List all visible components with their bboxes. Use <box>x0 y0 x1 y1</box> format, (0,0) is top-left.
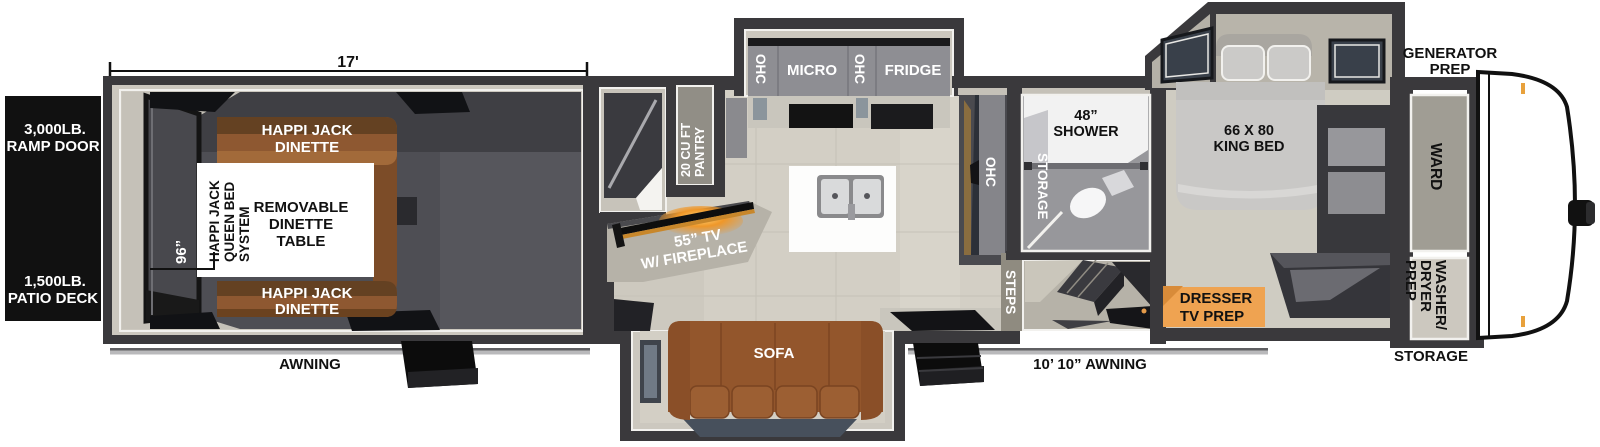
svg-text:TABLE: TABLE <box>277 233 326 250</box>
svg-text:66 X 80: 66 X 80 <box>1224 123 1274 139</box>
svg-text:WASHER/: WASHER/ <box>1432 260 1449 331</box>
svg-text:OHC: OHC <box>753 54 768 84</box>
svg-text:1,500LB.: 1,500LB. <box>24 273 86 290</box>
svg-text:STORAGE: STORAGE <box>1394 348 1468 365</box>
svg-text:REMOVABLE: REMOVABLE <box>254 199 349 216</box>
svg-text:48”: 48” <box>1074 108 1097 124</box>
svg-text:STORAGE: STORAGE <box>1035 153 1050 220</box>
svg-text:FRIDGE: FRIDGE <box>885 62 942 79</box>
svg-text:PREP: PREP <box>1430 61 1471 78</box>
svg-text:TV PREP: TV PREP <box>1180 308 1244 325</box>
svg-text:MICRO: MICRO <box>787 62 837 79</box>
svg-text:10’ 10” AWNING: 10’ 10” AWNING <box>1033 356 1147 373</box>
svg-text:PATIO DECK: PATIO DECK <box>8 290 98 307</box>
svg-text:HAPPI JACK: HAPPI JACK <box>262 285 353 302</box>
svg-text:WARD: WARD <box>1427 143 1444 190</box>
svg-text:PANTRY: PANTRY <box>693 126 707 177</box>
svg-text:DINETTE: DINETTE <box>275 301 339 318</box>
svg-text:HAPPI JACK: HAPPI JACK <box>262 122 353 139</box>
svg-text:RAMP DOOR: RAMP DOOR <box>6 138 99 155</box>
svg-text:3,000LB.: 3,000LB. <box>24 121 86 138</box>
svg-text:GENERATOR: GENERATOR <box>1403 45 1498 62</box>
svg-text:KING BED: KING BED <box>1214 139 1285 155</box>
svg-text:20 CU FT: 20 CU FT <box>679 122 693 177</box>
svg-text:AWNING: AWNING <box>279 356 341 373</box>
svg-text:DRYER: DRYER <box>1417 260 1434 312</box>
svg-text:17': 17' <box>337 54 359 71</box>
svg-text:PREP: PREP <box>1402 260 1419 301</box>
svg-text:HAPPI JACK: HAPPI JACK <box>207 180 222 262</box>
svg-text:STEPS: STEPS <box>1003 270 1018 314</box>
svg-text:QUEEN BED: QUEEN BED <box>222 181 237 262</box>
svg-text:SOFA: SOFA <box>754 345 795 362</box>
svg-text:OHC: OHC <box>983 157 998 187</box>
svg-text:SYSTEM: SYSTEM <box>237 206 252 262</box>
svg-text:96”: 96” <box>173 240 190 264</box>
svg-text:DINETTE: DINETTE <box>269 216 333 233</box>
svg-text:DINETTE: DINETTE <box>275 139 339 156</box>
svg-text:SHOWER: SHOWER <box>1053 124 1119 140</box>
svg-text:OHC: OHC <box>852 54 867 84</box>
svg-text:DRESSER: DRESSER <box>1180 290 1253 307</box>
